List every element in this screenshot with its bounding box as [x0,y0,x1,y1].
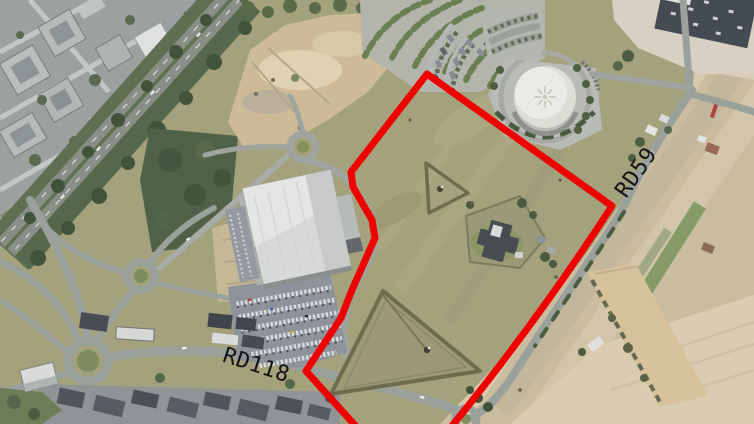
map-canvas[interactable]: RD118 RD59 [0,0,754,424]
aerial-map[interactable]: RD118 RD59 [0,0,754,424]
